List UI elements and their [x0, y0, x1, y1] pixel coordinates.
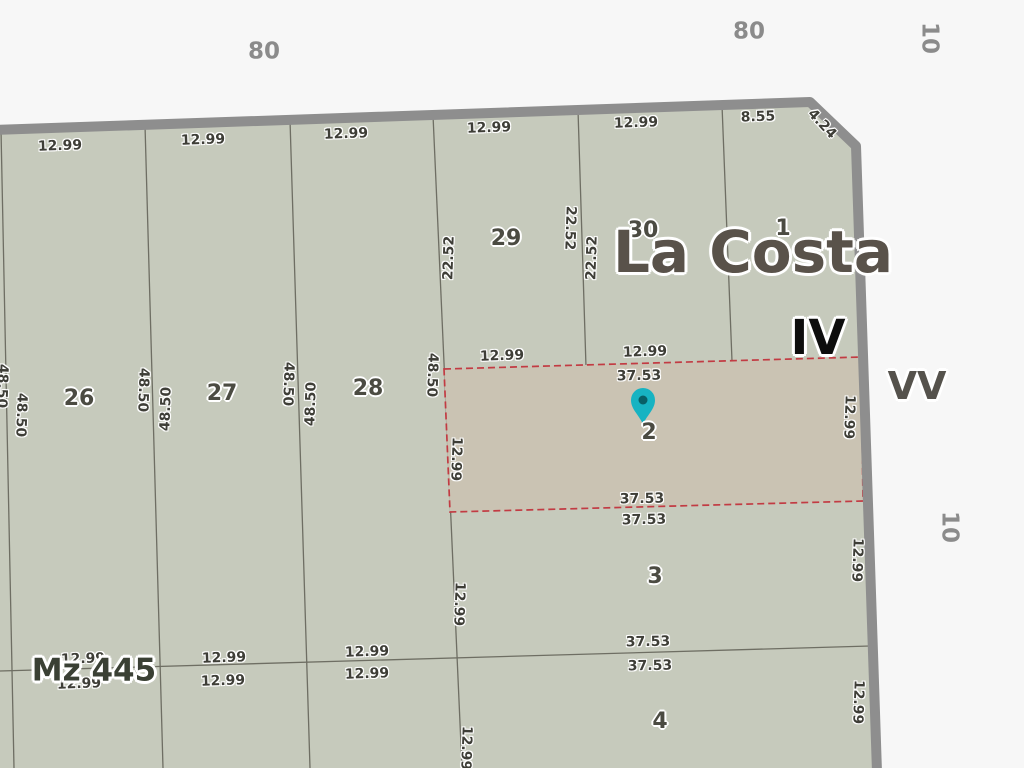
block-number-label: Mz 445	[32, 656, 156, 687]
highlighted-lot[interactable]	[444, 357, 863, 512]
road-name-label: VV	[888, 367, 947, 405]
cadastral-map: 808010102627282930123412.9912.9912.9912.…	[0, 0, 1024, 768]
section-number-label: IV	[790, 314, 845, 362]
area-name-label: La Costa	[613, 223, 893, 281]
